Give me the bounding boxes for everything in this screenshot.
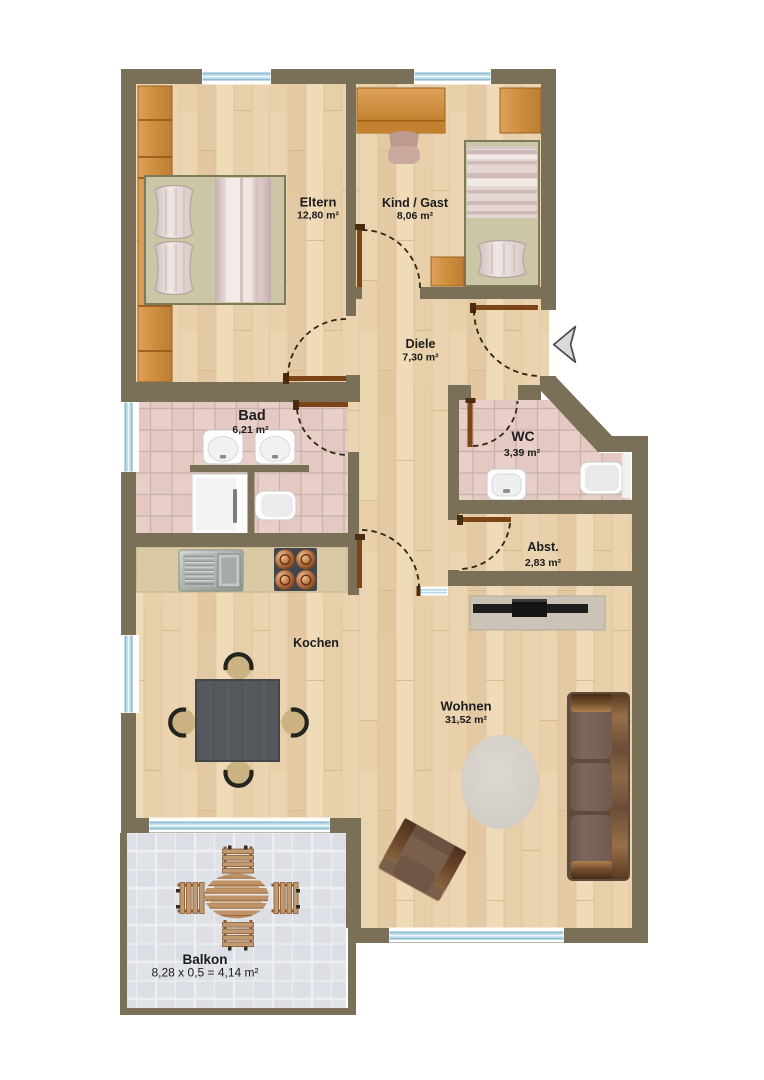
svg-text:6,21 m²: 6,21 m²: [232, 424, 269, 436]
svg-text:3,39 m²: 3,39 m²: [504, 447, 541, 459]
svg-text:12,80 m²: 12,80 m²: [297, 210, 340, 222]
svg-text:Bad: Bad: [238, 408, 265, 424]
svg-text:7,30 m²: 7,30 m²: [402, 352, 439, 364]
svg-text:8,28 x 0,5 = 4,14 m²: 8,28 x 0,5 = 4,14 m²: [151, 966, 258, 980]
svg-text:Kind / Gast: Kind / Gast: [382, 196, 449, 210]
svg-text:Kochen: Kochen: [293, 636, 339, 650]
svg-text:Wohnen: Wohnen: [440, 699, 491, 714]
svg-text:8,06 m²: 8,06 m²: [397, 210, 434, 222]
svg-text:2,83 m²: 2,83 m²: [525, 557, 562, 569]
svg-text:Eltern: Eltern: [300, 195, 337, 210]
svg-text:Diele: Diele: [406, 337, 436, 351]
svg-text:Abst.: Abst.: [527, 540, 558, 554]
svg-text:31,52 m²: 31,52 m²: [445, 714, 488, 726]
svg-text:WC: WC: [511, 428, 534, 444]
